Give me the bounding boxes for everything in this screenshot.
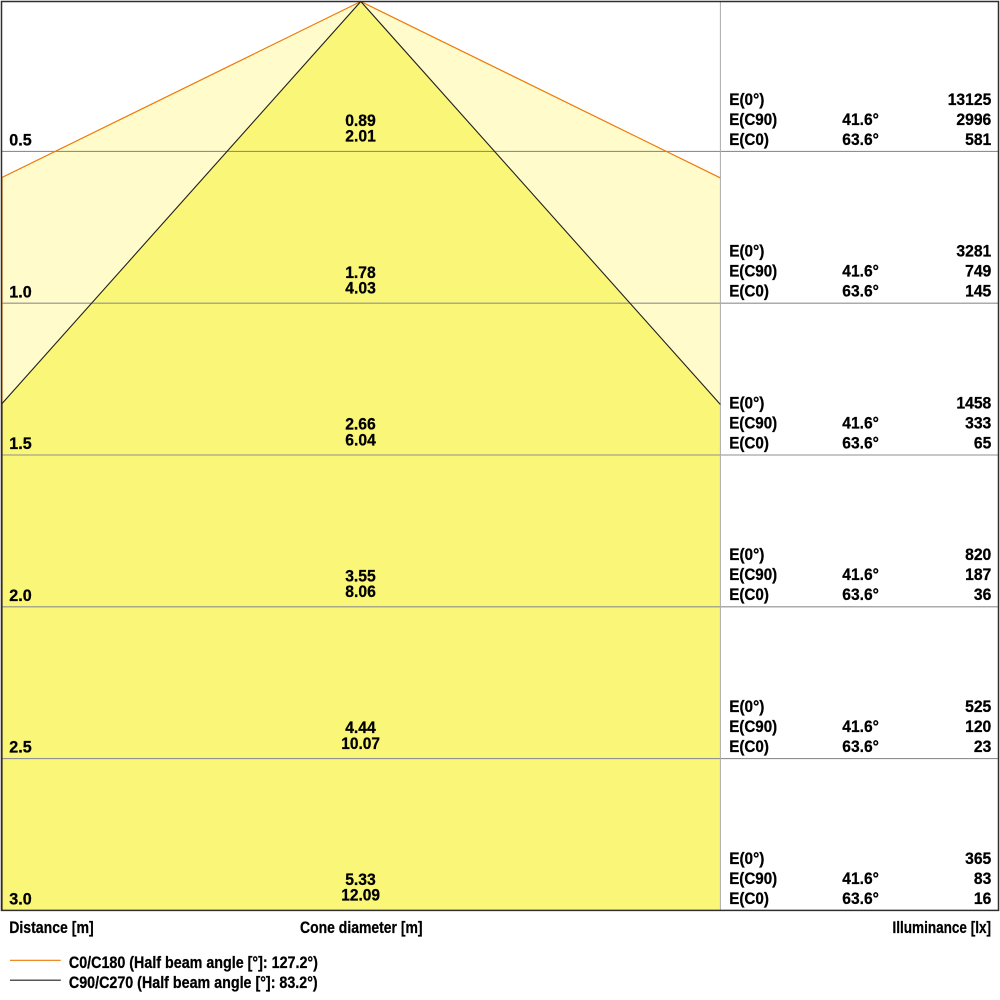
svg-text:36: 36 (974, 586, 991, 604)
svg-text:E(C0): E(C0) (729, 283, 769, 301)
svg-text:16: 16 (974, 890, 991, 908)
svg-text:4.03: 4.03 (345, 280, 376, 298)
svg-text:2.5: 2.5 (9, 739, 31, 757)
svg-text:E(0°): E(0°) (729, 91, 764, 109)
svg-text:365: 365 (965, 850, 991, 868)
svg-text:1.0: 1.0 (9, 283, 31, 301)
svg-text:Illuminance [lx]: Illuminance [lx] (893, 919, 992, 937)
svg-text:E(C0): E(C0) (729, 586, 769, 604)
svg-text:63.6°: 63.6° (842, 586, 879, 604)
svg-text:E(C0): E(C0) (729, 890, 769, 908)
svg-text:2.01: 2.01 (345, 128, 376, 146)
svg-text:1.5: 1.5 (9, 435, 31, 453)
svg-text:41.6°: 41.6° (842, 870, 879, 888)
svg-text:63.6°: 63.6° (842, 131, 879, 149)
svg-text:23: 23 (974, 738, 991, 756)
svg-text:E(0°): E(0°) (729, 394, 764, 412)
svg-text:8.06: 8.06 (345, 583, 376, 601)
svg-text:E(C0): E(C0) (729, 434, 769, 452)
svg-text:63.6°: 63.6° (842, 890, 879, 908)
svg-text:E(0°): E(0°) (729, 698, 764, 716)
svg-text:333: 333 (965, 414, 991, 432)
svg-text:41.6°: 41.6° (842, 718, 879, 736)
svg-text:Cone diameter [m]: Cone diameter [m] (300, 919, 423, 937)
svg-text:E(0°): E(0°) (729, 546, 764, 564)
svg-text:2.0: 2.0 (9, 587, 31, 605)
svg-text:525: 525 (965, 698, 991, 716)
svg-text:E(0°): E(0°) (729, 850, 764, 868)
svg-text:C90/C270 (Half beam angle [°]:: C90/C270 (Half beam angle [°]: 83.2°) (69, 974, 318, 992)
svg-text:10.07: 10.07 (341, 735, 380, 753)
svg-text:820: 820 (965, 546, 991, 564)
svg-text:12.09: 12.09 (341, 887, 380, 905)
svg-text:63.6°: 63.6° (842, 434, 879, 452)
svg-text:120: 120 (965, 718, 991, 736)
svg-text:3281: 3281 (956, 243, 991, 261)
svg-text:E(C0): E(C0) (729, 131, 769, 149)
svg-text:2996: 2996 (956, 111, 991, 129)
svg-text:13125: 13125 (948, 91, 992, 109)
svg-text:E(C0): E(C0) (729, 738, 769, 756)
svg-text:749: 749 (965, 263, 991, 281)
svg-text:E(C90): E(C90) (729, 111, 777, 129)
svg-text:E(C90): E(C90) (729, 718, 777, 736)
svg-text:E(C90): E(C90) (729, 566, 777, 584)
svg-text:E(C90): E(C90) (729, 414, 777, 432)
svg-text:1458: 1458 (956, 394, 991, 412)
svg-text:3.0: 3.0 (9, 891, 31, 909)
svg-text:41.6°: 41.6° (842, 566, 879, 584)
svg-text:6.04: 6.04 (345, 431, 376, 449)
svg-text:63.6°: 63.6° (842, 738, 879, 756)
svg-text:E(C90): E(C90) (729, 263, 777, 281)
svg-text:581: 581 (965, 131, 991, 149)
svg-text:63.6°: 63.6° (842, 283, 879, 301)
svg-text:41.6°: 41.6° (842, 414, 879, 432)
svg-text:41.6°: 41.6° (842, 111, 879, 129)
svg-text:41.6°: 41.6° (842, 263, 879, 281)
svg-text:65: 65 (974, 434, 991, 452)
svg-text:E(0°): E(0°) (729, 243, 764, 261)
svg-text:C0/C180 (Half beam angle [°]:: C0/C180 (Half beam angle [°]: 127.2°) (69, 954, 318, 972)
svg-text:Distance [m]: Distance [m] (9, 919, 94, 937)
svg-text:0.5: 0.5 (9, 132, 31, 150)
svg-text:187: 187 (965, 566, 991, 584)
svg-text:E(C90): E(C90) (729, 870, 777, 888)
svg-text:145: 145 (965, 283, 991, 301)
svg-text:83: 83 (974, 870, 991, 888)
